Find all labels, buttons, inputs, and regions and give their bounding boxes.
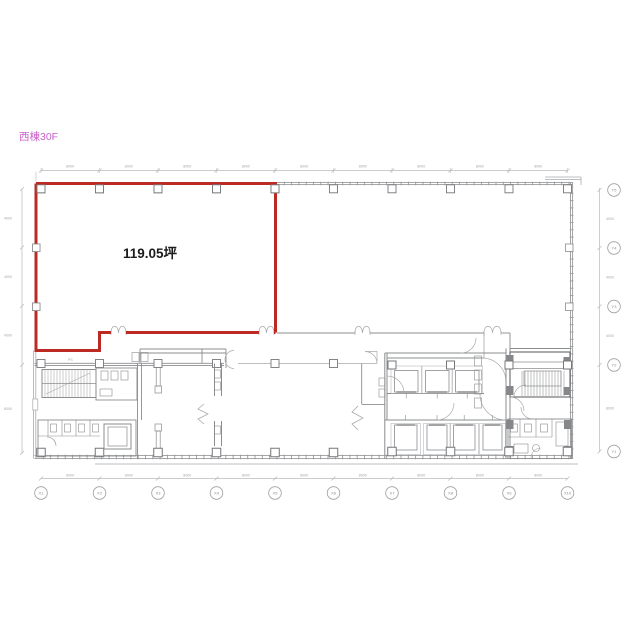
svg-text:8000: 8000 — [359, 165, 367, 169]
svg-text:8000: 8000 — [183, 474, 191, 478]
svg-text:8000: 8000 — [183, 165, 191, 169]
svg-text:8000: 8000 — [242, 165, 250, 169]
svg-text:4000: 4000 — [606, 275, 614, 279]
svg-text:8000: 8000 — [300, 474, 308, 478]
svg-text:X5: X5 — [273, 491, 279, 496]
svg-text:4000: 4000 — [4, 275, 12, 279]
svg-text:4000: 4000 — [606, 334, 614, 338]
svg-text:4000: 4000 — [606, 217, 614, 221]
svg-text:8000: 8000 — [300, 165, 308, 169]
svg-text:8000: 8000 — [66, 474, 74, 478]
svg-text:X2: X2 — [97, 491, 103, 496]
svg-text:4000: 4000 — [4, 334, 12, 338]
svg-text:X4: X4 — [214, 491, 220, 496]
svg-text:8000: 8000 — [417, 165, 425, 169]
svg-text:8000: 8000 — [534, 474, 542, 478]
svg-text:Y4: Y4 — [612, 246, 618, 251]
svg-text:8000: 8000 — [417, 474, 425, 478]
svg-text:X10: X10 — [564, 491, 572, 496]
svg-text:119.05坪: 119.05坪 — [123, 246, 178, 261]
svg-text:X8: X8 — [448, 491, 454, 496]
svg-text:X7: X7 — [390, 491, 396, 496]
svg-text:西棟30F: 西棟30F — [19, 130, 58, 143]
svg-text:8000: 8000 — [125, 165, 133, 169]
svg-text:X6: X6 — [331, 491, 337, 496]
svg-text:PS: PS — [68, 358, 73, 362]
svg-text:X3: X3 — [156, 491, 162, 496]
svg-text:4000: 4000 — [4, 216, 12, 220]
svg-text:8000: 8000 — [359, 474, 367, 478]
svg-text:Y3: Y3 — [612, 304, 618, 309]
svg-text:8000: 8000 — [66, 165, 74, 169]
svg-text:8000: 8000 — [606, 406, 614, 410]
svg-text:8000: 8000 — [534, 165, 542, 169]
svg-text:8000: 8000 — [4, 407, 12, 411]
svg-text:8000: 8000 — [125, 474, 133, 478]
svg-text:8000: 8000 — [476, 474, 484, 478]
svg-text:X1: X1 — [39, 491, 45, 496]
svg-text:X9: X9 — [507, 491, 513, 496]
svg-text:8000: 8000 — [242, 474, 250, 478]
svg-text:Y1: Y1 — [612, 449, 618, 454]
svg-text:Y5: Y5 — [612, 188, 618, 193]
svg-text:8000: 8000 — [476, 165, 484, 169]
svg-text:Y2: Y2 — [612, 363, 618, 368]
